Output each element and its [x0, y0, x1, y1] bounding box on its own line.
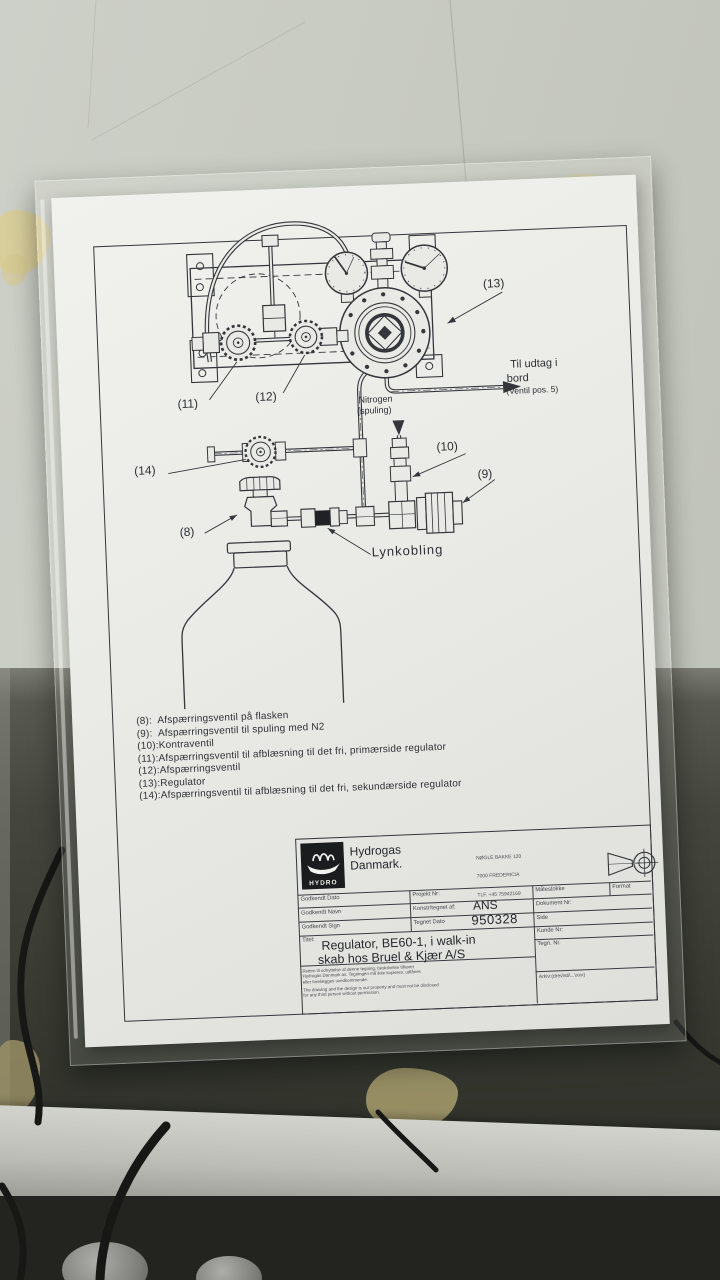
callout-10: (10) — [436, 440, 458, 453]
gas-cylinder — [178, 539, 343, 709]
nitrogen-label-2: (spuling) — [357, 406, 392, 417]
page-label: Side — [536, 915, 548, 921]
pressure-gauge-left — [325, 251, 369, 295]
check-valve-10 — [389, 438, 412, 502]
callout-13: (13) — [483, 277, 505, 290]
company-name-2: Danmark. — [350, 857, 403, 873]
address-line: 7000 FREDERICIA — [477, 872, 523, 880]
drawn-date-value: 950328 — [471, 911, 518, 928]
address-line: TLF. +45 75942169 — [477, 890, 523, 898]
drawn-by-value: ANS — [473, 898, 498, 913]
format-label: Format — [612, 883, 631, 890]
quick-coupling-label: Lynkobling — [371, 543, 443, 560]
purge-valve-9 — [416, 492, 463, 534]
callout-14: (14) — [134, 464, 156, 477]
outlet-label-2: bord — [507, 373, 529, 385]
callout-11: (11) — [177, 397, 198, 410]
title-label: Titel: — [302, 937, 315, 943]
drawing-paper: (11) (12) (13) (14) (8) (9) (10) Til udt… — [51, 175, 670, 1048]
callout-8: (8) — [179, 526, 194, 539]
nitrogen-inlet-arrow — [392, 420, 405, 435]
shutoff-valve-12 — [289, 319, 348, 353]
address-line: NØGLE BAKKE 120 — [476, 854, 522, 862]
pressure-gauge-right — [400, 244, 448, 292]
viking-ship-icon — [300, 844, 344, 880]
quick-coupling-assembly — [301, 501, 416, 533]
hydro-logo-text: HYDRO — [302, 879, 345, 888]
photo-of-technical-drawing: (11) (12) (13) (14) (8) (9) (10) Til udt… — [0, 0, 720, 1280]
callout-9: (9) — [477, 468, 492, 481]
hydro-logo: HYDRO — [300, 842, 345, 890]
outlet-label-1: Til udtag i — [510, 358, 558, 371]
drawn-date-label: Tegnet Dato — [413, 919, 444, 926]
drawing-no-label: Tegn. Nr. — [537, 940, 560, 947]
callout-12: (12) — [255, 390, 277, 403]
cylinder-valve — [240, 476, 288, 528]
project-no-label: Projekt Nr: — [412, 891, 440, 898]
scale-label: Målestokke — [535, 886, 565, 893]
customer-no-label: Kunde Nr: — [537, 927, 563, 934]
